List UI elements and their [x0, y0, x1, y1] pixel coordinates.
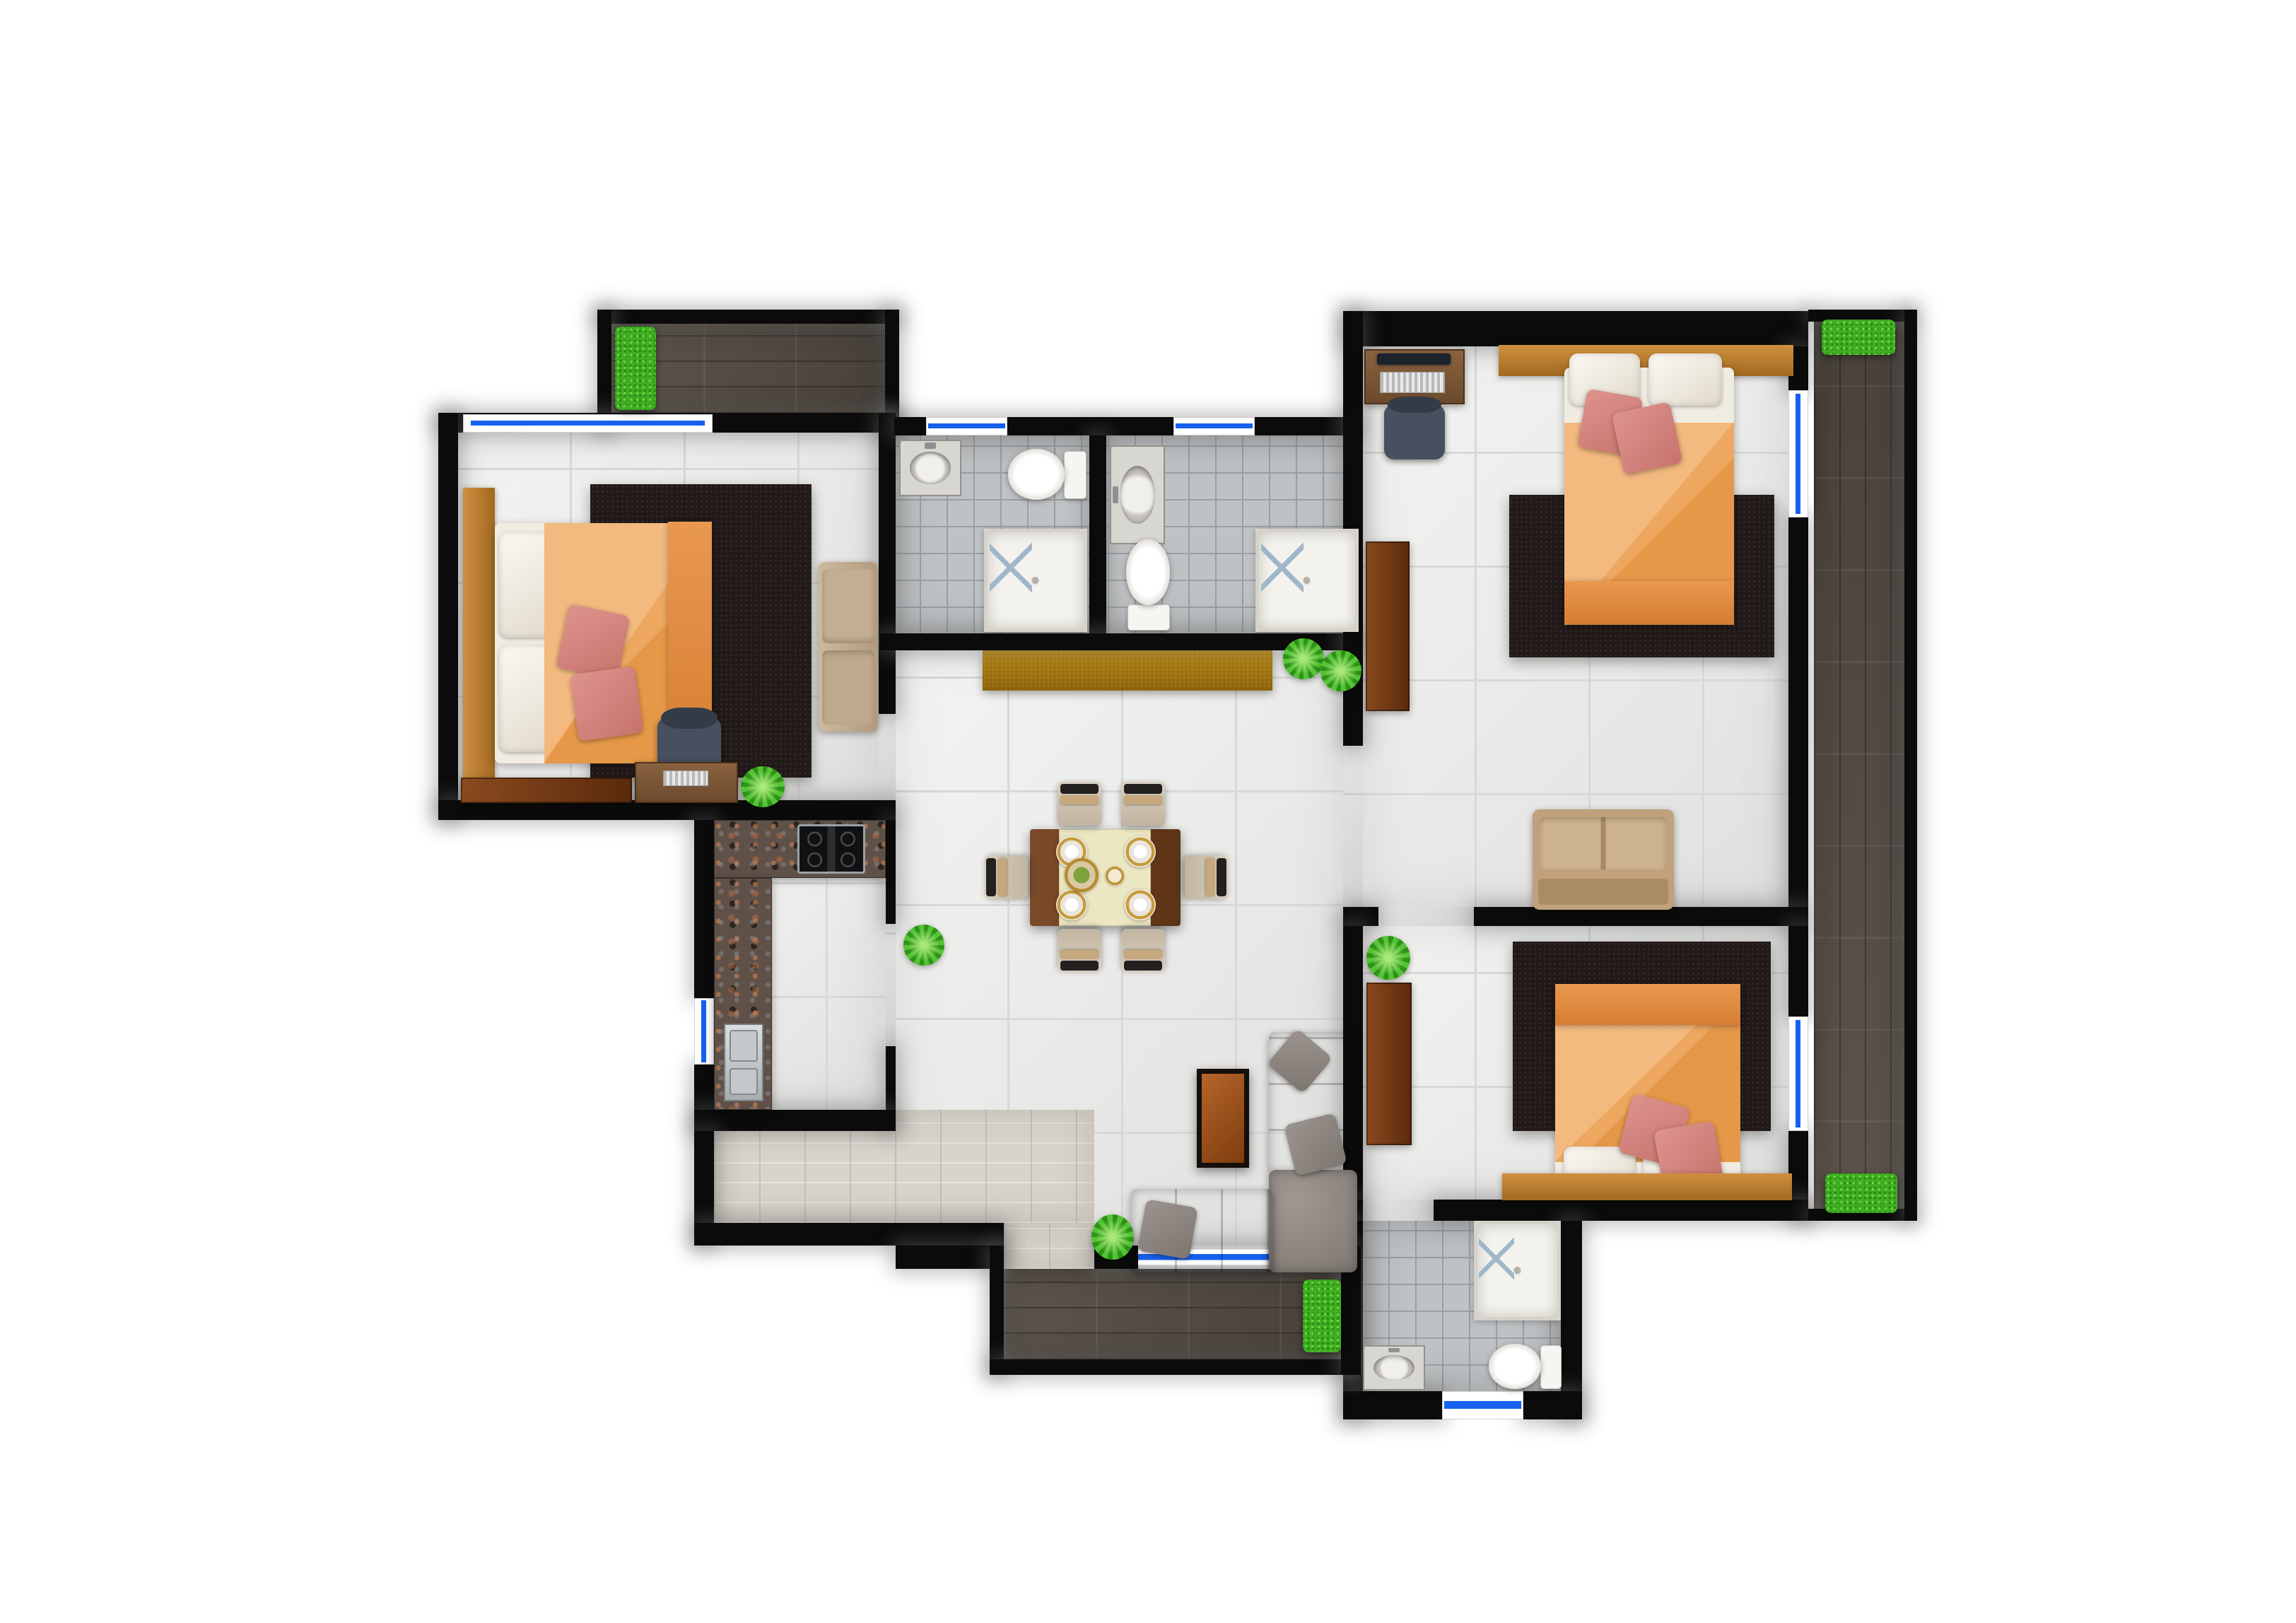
wall-bedroom3-bottom-b [1434, 1200, 1808, 1221]
ensuite-door-floor [1363, 1200, 1434, 1221]
bedroom2-keyboard [1380, 372, 1445, 393]
ensuite-sink [1363, 1345, 1425, 1390]
dining-chair-right [1185, 855, 1229, 899]
window-bathroom-left [926, 417, 1007, 435]
bathroomL-sink [899, 440, 961, 496]
sofa-cushion-1 [1137, 1199, 1198, 1260]
window-bedroom1 [463, 414, 713, 433]
bedroom2-office-chair [1384, 404, 1445, 459]
living-plant-sofa [1091, 1214, 1134, 1260]
bathroomR-sink [1110, 445, 1165, 544]
bedroom2-duvet-band [1564, 581, 1734, 623]
balcony-right-floor [1814, 320, 1904, 1214]
ensuite-shower [1474, 1221, 1561, 1320]
window-ensuite [1442, 1391, 1523, 1419]
hall-plant-1 [1283, 638, 1324, 679]
wall-kitchen-bottom [694, 1110, 896, 1131]
bedroom3-duvet-band [1555, 984, 1740, 1025]
wall-balconyB-bottom [990, 1359, 1361, 1375]
wall-bedroom3-right-a [1788, 926, 1808, 1016]
wall-bedroom1-left [438, 413, 458, 820]
dining-chair-bottom-1 [1058, 929, 1101, 973]
wall-bedroom2-top [1343, 311, 1808, 346]
wall-bedroom1-right [879, 413, 896, 714]
bathroomL-shower [984, 529, 1087, 632]
wall-divider-b [1474, 907, 1808, 926]
dining-chair-top-1 [1058, 782, 1101, 826]
grass-balconyTL [615, 327, 656, 410]
bathroomL-toilet [1007, 448, 1086, 500]
dining-chair-top-2 [1121, 782, 1165, 826]
window-bedroom2 [1788, 390, 1808, 517]
living-plant-kitchen [903, 925, 944, 966]
bedroom2-pillow-2 [1648, 353, 1722, 406]
bathroomR-toilet [1125, 539, 1171, 631]
coffee-table [1197, 1069, 1249, 1168]
wall-utility-bottom [694, 1223, 1004, 1246]
wall-divider-a [1343, 907, 1378, 926]
window-bedroom3 [1788, 1016, 1808, 1131]
wall-ensuite-right [1561, 1221, 1582, 1419]
bedroom1-headboard [463, 488, 495, 802]
balcony-door-floor [1004, 1223, 1094, 1269]
hall-rug [983, 650, 1272, 691]
ensuite-toilet [1488, 1343, 1562, 1390]
wall-ensuite-bottom-a [1343, 1391, 1442, 1419]
wall-balconyR-outer [1904, 310, 1917, 1221]
kitchen-cooktop [797, 824, 865, 874]
wall-ensuite-bottom-b [1523, 1391, 1582, 1419]
wall-living-bottom-a [896, 1246, 1004, 1269]
grass-balconyB [1303, 1279, 1341, 1352]
wall-balconyTL-top [597, 310, 899, 324]
bedroom1-cushion-2 [570, 666, 643, 742]
wall-kitchen-stub-a [886, 820, 896, 924]
bedroom1-plant [741, 766, 785, 807]
bedroom2-cushion-2 [1612, 402, 1682, 475]
wall-bathrooms-divider [1089, 435, 1106, 633]
bedroom1-keyboard [663, 771, 708, 786]
dining-chair-left [984, 855, 1028, 899]
bedroom1-couch [819, 562, 878, 732]
grass-balconyR-bottom [1825, 1173, 1897, 1213]
hall-plant-2 [1320, 650, 1361, 691]
bedroom3-plant [1366, 936, 1410, 980]
bedroom2-loveseat [1533, 809, 1674, 910]
kitchen-sink [724, 1024, 763, 1101]
dining-cup [1106, 867, 1124, 885]
bathroomR-shower [1255, 529, 1359, 632]
grass-balconyR-top [1822, 320, 1895, 355]
balcony-bottom-floor [1004, 1269, 1341, 1359]
page [0, 0, 2296, 1623]
bedroom3-wardrobe [1366, 983, 1412, 1145]
dining-plate-2 [1125, 836, 1156, 867]
window-bathroom-right [1173, 417, 1255, 435]
dining-plate-4 [1125, 889, 1156, 920]
wall-balconyB-left [990, 1246, 1004, 1375]
wall-bedroom1-bottom [438, 800, 896, 820]
floor-plan [0, 0, 2296, 1623]
sofa-corner [1269, 1170, 1357, 1272]
dining-chair-bottom-2 [1121, 929, 1165, 973]
bedroom1-door-floor [879, 714, 896, 800]
kitchen-door-floor [886, 924, 896, 1046]
dining-bowl [1065, 858, 1099, 892]
bedroom3-bench [1502, 1173, 1792, 1200]
wall-bedroom2-right-b [1788, 517, 1808, 907]
wall-kitchen-left-a [694, 820, 714, 998]
bedroom2-monitor [1377, 353, 1451, 365]
dining-plate-3 [1056, 889, 1087, 920]
bedroom2-wardrobe [1366, 541, 1410, 711]
window-kitchen [694, 998, 714, 1065]
bedroom2-door-floor [1343, 746, 1363, 907]
bedroom1-dresser [461, 778, 632, 803]
bedroom3-door-floor [1378, 907, 1474, 926]
